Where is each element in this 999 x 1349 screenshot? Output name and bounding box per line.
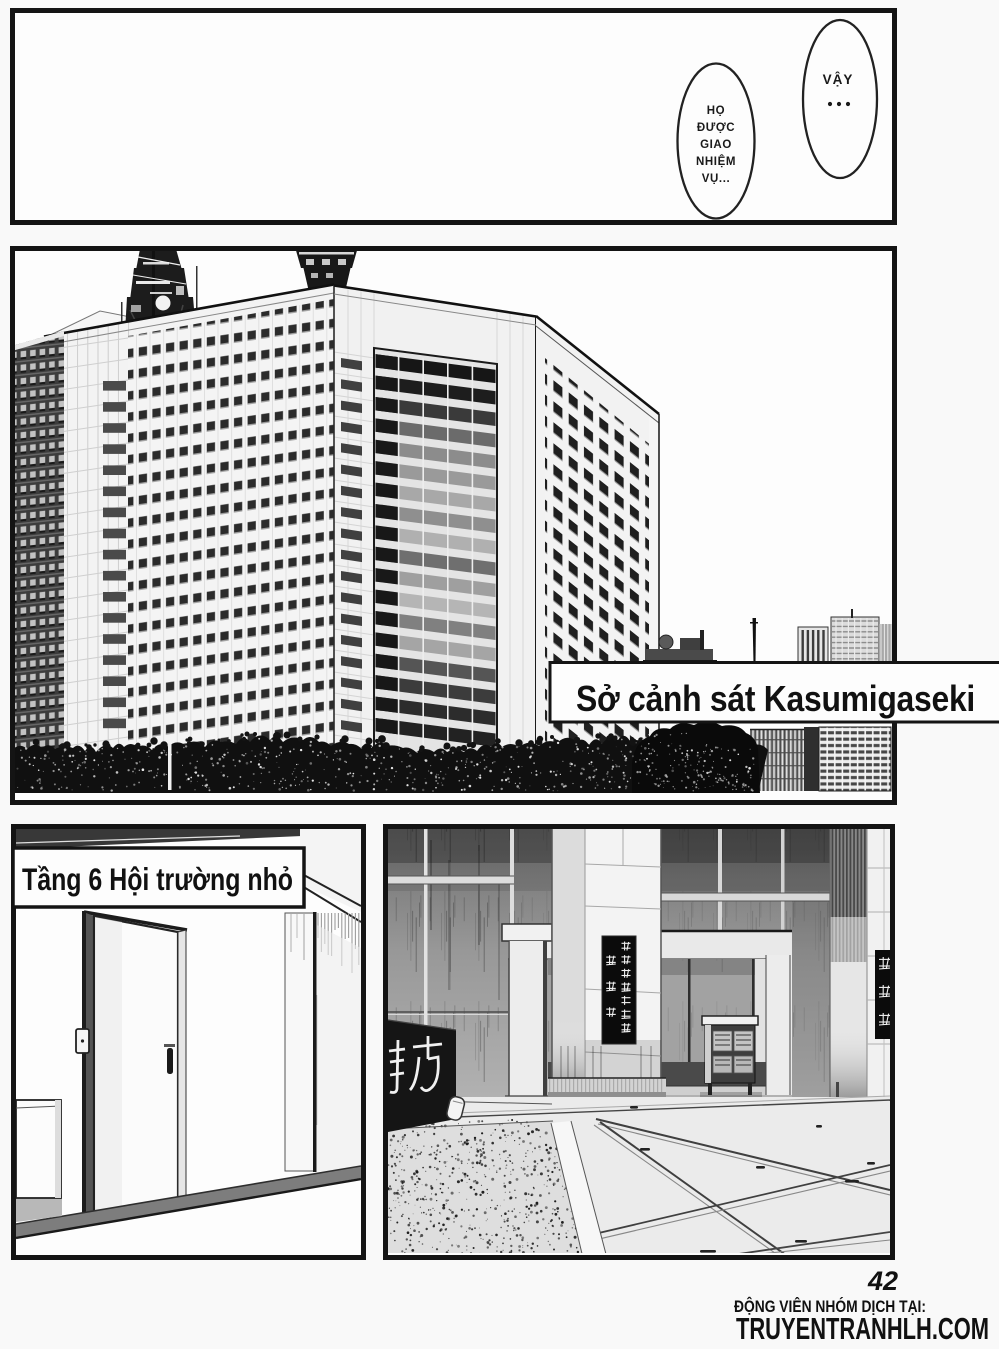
svg-text:GIAO: GIAO — [700, 139, 732, 151]
svg-text:42: 42 — [867, 1266, 898, 1296]
svg-text:VỤ...: VỤ... — [702, 173, 731, 185]
svg-text:VẬY: VẬY — [823, 72, 854, 87]
svg-text:HỌ: HỌ — [707, 105, 725, 117]
svg-text:Tầng 6 Hội trường nhỏ: Tầng 6 Hội trường nhỏ — [22, 861, 293, 897]
svg-text:NHIỆM: NHIỆM — [696, 155, 736, 168]
svg-text:ĐƯỢC: ĐƯỢC — [697, 122, 735, 134]
svg-text:Sở cảnh sát Kasumigaseki: Sở cảnh sát Kasumigaseki — [576, 678, 975, 719]
svg-text:TRUYENTRANHLH.COM: TRUYENTRANHLH.COM — [736, 1311, 989, 1346]
